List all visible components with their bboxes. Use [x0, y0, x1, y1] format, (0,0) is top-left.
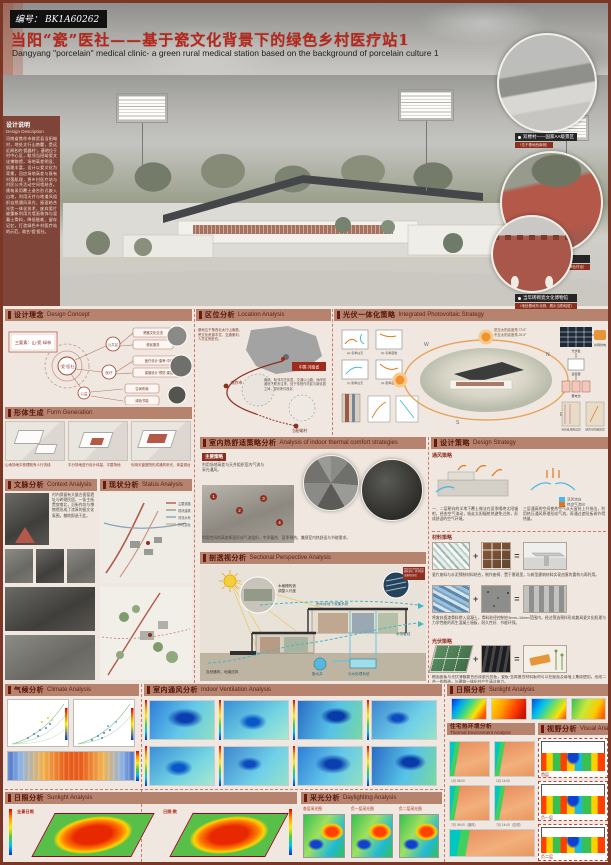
location-village-label: 当阳峪村	[292, 428, 307, 433]
daylight-map-3	[399, 814, 439, 858]
sunlight-tile	[531, 698, 567, 720]
design-description-panel: 设计说明 Design Description 河南省焦作市修武县当阳峪村，地处…	[3, 116, 60, 306]
section-title-cn: 剖透视分析	[209, 553, 247, 563]
thermal-axon-tile-wide	[449, 829, 535, 857]
section-header-daylight: 采光分析 Daylighting Analysis	[301, 792, 442, 804]
section-header-pv: 光伏一体化策略 Integrated Photovoltaic Strategy	[334, 309, 608, 321]
strategy-sub2: 材料策略	[432, 534, 452, 541]
comfort-photo-wheel	[303, 455, 359, 511]
annotation-leader-line	[426, 121, 427, 191]
cfd-tile	[149, 700, 215, 740]
section-title-cn: 室内热舒适策略分析	[209, 438, 277, 448]
material-cap2: 将废弃瓷渣骨料掺入混凝土，骨料粒径控制在5mm–10mm范围内，经过筛选预拌形成…	[432, 616, 606, 626]
section-bullet-icon	[8, 409, 11, 417]
plus-icon: +	[473, 594, 478, 604]
section-header-design-concept: 设计理念 Design Concept	[5, 309, 192, 321]
material-cap3: 釉面瓷板与光伏薄膜复合形成瓷光伏板，瓷板·金属复合材料板材可以在屋面及幕墙上集成…	[432, 675, 606, 683]
cfd-colorbar	[219, 746, 221, 786]
concept-node: 公益	[80, 391, 88, 396]
section-title-cn: 光伏一体化策略	[343, 310, 396, 320]
daylight-map-1	[303, 814, 345, 858]
location-note: 基地位于豫西北太行山南麓，瓷文化资源丰富，交通便利，人员往来密切。	[198, 328, 242, 342]
ventilation-diagram-1	[432, 460, 518, 504]
section-header-sectional: 剖透视分析 Sectional Perspective Analysis	[200, 552, 426, 564]
section-title-cn: 室内通风分析	[153, 685, 198, 695]
pv-flow-label: 逆变器	[571, 371, 580, 376]
sectional-label-rain: 雨水经地下收集系统	[316, 601, 349, 606]
location-map-diagram: 中国·河南省 焦作市 当阳峪村 基地位于豫西北太行山南麓，瓷文化资源丰富，交通便…	[196, 322, 331, 435]
form-step-2	[68, 421, 128, 461]
thermal-axon-tile	[449, 741, 490, 777]
strategy-divider	[432, 531, 606, 532]
section-title-en: Status Analysis	[142, 482, 183, 488]
daylight-label-3: 负二层采光图	[399, 807, 422, 812]
section-header-sunlight: 日照分析 Sunlight Analysis	[447, 684, 608, 696]
cfd-tile	[371, 746, 437, 786]
porcelain-shards-photo	[432, 542, 470, 570]
cfd-colorbar	[145, 700, 147, 740]
form-caption-3: 利用天窗庭院形成通风采光，体量退台	[131, 463, 191, 468]
cfd-tile	[223, 746, 289, 786]
visual-box-3: 负二层	[538, 824, 608, 861]
description-title-en: Design Description	[6, 129, 57, 134]
pv-room-caption: (a) 冬季白天	[347, 350, 364, 355]
section-title-cn: 文脉分析	[14, 480, 44, 490]
pv-strategy-diagram: (a) 冬季白天 (b) 冬季夜晚 (c) 夏季白天 (d) 夏季夜晚 夏至太阳…	[334, 322, 608, 435]
thermal-caption: 1月 14:00	[496, 778, 510, 783]
daylight-label-2: 负一层采光图	[351, 807, 374, 812]
sunlight-mid-label: 日照·数	[163, 809, 177, 815]
section-bullet-icon	[147, 686, 150, 694]
location-city-label: 焦作市	[231, 380, 243, 385]
section-header-comfort: 室内热舒适策略分析 Analysis of indoor thermal com…	[200, 437, 426, 449]
compass-w: W	[424, 342, 429, 348]
sectional-label-pipes: 水流管线	[396, 631, 411, 636]
code-value: BK1A60262	[45, 15, 99, 25]
pv-flow-label: 蓄电池	[571, 393, 580, 398]
location-desc: 南依、毗邻村庄民居，交通以山路、休闲河滩地下联系往来，处于传统作坊区与新民居之间…	[264, 378, 326, 391]
cfd-tile	[297, 746, 363, 786]
location-country-label: 中国·河南省	[299, 365, 319, 370]
section-bullet-icon	[8, 686, 11, 694]
visual-heatmap	[541, 753, 605, 771]
daylight-map-2	[351, 814, 393, 858]
section-header-visual: 视野分析 Visual Analysis	[538, 723, 608, 735]
sunlight-left-label: 全景日照	[17, 809, 34, 815]
callout-label: 双楼村——国家AA级景区	[523, 134, 574, 140]
bottom-divider-2	[444, 684, 445, 862]
concept-mindmap-diagram: 三要素：山·瓷·绿林 “瓷”医社 公共区 医疗 公益 瓷器文化交流 便民服务 医…	[5, 322, 192, 405]
sun-angle-summer: 夏至太阳高度角 73.5°	[494, 327, 527, 332]
sunlight-colorbar	[9, 809, 12, 855]
aggregate-steel-photo	[481, 585, 511, 613]
context-photo-4	[67, 549, 95, 583]
site-photo-museum	[491, 215, 573, 293]
comfort-interior-photo	[361, 459, 423, 521]
section-title-en: Design Strategy	[473, 440, 516, 446]
section-bullet-icon	[103, 481, 106, 489]
sectional-label-grille-2: 调整人尺度	[278, 588, 296, 593]
section-title-en: Sunlight Analysis	[47, 795, 92, 801]
compass-n: N	[546, 352, 550, 358]
section-title-cn: 日照分析	[14, 793, 44, 803]
psychrometric-chart-1	[7, 699, 69, 747]
pv-panel-stack-photo	[481, 645, 511, 673]
pv-flow-label: 并网供电	[594, 342, 606, 347]
cfd-colorbar	[219, 700, 221, 740]
section-title-cn: 视野分析	[547, 724, 577, 734]
legend-label: 河流水系	[178, 515, 191, 520]
description-title-cn: 设计说明	[6, 120, 57, 129]
floor-plan-outline	[541, 827, 605, 837]
sunlight-plan-2	[169, 813, 288, 857]
plus-icon: +	[473, 551, 478, 561]
page-title: 当阳“瓷”医社——基于瓷文化背景下的绿色乡村医疗站1	[11, 29, 410, 50]
concept-leaf: 医疗设计·康养·中医	[145, 358, 174, 363]
comfort-tag: 主要策略	[202, 453, 226, 461]
thermal-axon-tile	[494, 785, 535, 821]
form-caption-2: 平分场地进行设计体量，平整场地	[68, 463, 128, 468]
callout-label: 当年砖砌瓷文化博物馆	[523, 295, 568, 301]
visual-heatmap	[541, 837, 605, 853]
pv-wall-caption: 通风空腔散热层	[585, 428, 605, 432]
strategy-cap1: 一、二层朝向的半地下覆土做法在夏季隔绝太阳辐射，经由空气流动，吸走太阳辐射热避免…	[432, 507, 518, 522]
form-step-1	[5, 421, 65, 461]
render-annotation-box	[116, 93, 168, 123]
context-photo-2	[5, 549, 33, 583]
status-site-plan	[100, 587, 192, 680]
section-title-cn: 日照分析	[456, 685, 486, 695]
material-equation-3: + =	[432, 645, 567, 673]
section-title-en: Integrated Photovoltaic Strategy	[399, 312, 484, 318]
section-title-cn: 区位分析	[205, 310, 235, 320]
column-divider	[194, 309, 195, 683]
site-photo-road	[497, 33, 597, 133]
thermal-axon-tile	[494, 741, 535, 777]
section-bullet-icon	[8, 311, 11, 319]
section-bullet-icon	[541, 725, 544, 733]
sectional-label-well: 集水井	[312, 671, 323, 676]
section-header-ventilation: 室内通风分析 Indoor Ventilation Analysis	[144, 684, 442, 696]
section-title-cn: 设计理念	[14, 310, 44, 320]
sectional-label-grille: 木格栅构造	[278, 583, 296, 588]
pv-wall-caption: 光伏幕墙构造层	[561, 428, 581, 432]
equals-icon: =	[514, 551, 519, 561]
ribbed-concrete-wall-photo	[523, 585, 567, 613]
photo-callout-3: 当年砖砌瓷文化博物馆 （地处基地东北侧，展示当阳峪窑）	[515, 294, 577, 309]
visual-box-2: 负一层	[538, 781, 608, 821]
section-title-en: Form Generation	[47, 410, 92, 416]
daylight-label-1: 各层采光图	[303, 807, 322, 812]
pv-building-diagram	[523, 645, 567, 673]
plus-icon: +	[473, 654, 478, 664]
comfort-bottom-note: 利用空间的高差断面形成气流组织，冬季蓄热、夏季排热，兼顾室内热舒适与节能需求。	[202, 536, 424, 541]
visual-floor-label: 负二层	[541, 854, 605, 860]
concept-leaf: 瓷器文化交流	[143, 330, 163, 335]
thermal-caption: 1月 08:00	[451, 778, 465, 783]
comfort-section-image: 1 2 3 4	[202, 485, 294, 543]
sectional-panel-note: 屋面光伏板吸收太阳辐射发电，多余热量由通风层带走	[404, 568, 424, 578]
glazed-tile-photo	[429, 645, 474, 673]
section-header-location: 区位分析 Location Analysis	[196, 309, 331, 321]
section-title-cn: 采光分析	[310, 793, 340, 803]
visual-heatmap	[541, 796, 605, 814]
section-title-en: Daylighting Analysis	[343, 795, 396, 801]
section-title-en: Sunlight Analysis	[489, 687, 534, 693]
section-bullet-icon	[434, 439, 437, 447]
strategy-cap2: 三层通高的空间使热空气从天窗处上升排出，利用热压通风原理形成气流，再通过遮阳板调…	[523, 507, 605, 522]
annual-temperature-heatmap	[7, 751, 135, 781]
pv-room-diagrams: (a) 冬季白天 (b) 冬季夜晚 (c) 夏季白天 (d) 夏季夜晚	[342, 330, 418, 422]
cool-flow-swatch-icon	[559, 497, 565, 502]
sectional-label-sewage: 污水处理系统	[348, 671, 370, 676]
section-bullet-icon	[450, 686, 453, 694]
callout-dot-icon	[518, 297, 521, 300]
section-title-en: Analysis of indoor thermal comfort strat…	[280, 440, 398, 446]
sun-angle-winter: 冬至太阳高度角 26.5°	[494, 332, 527, 337]
porcelain-bench-photo	[523, 542, 567, 570]
section-header-thermal-env: 住宅热环境分析 Thermal Environment Analysis	[447, 723, 535, 735]
cfd-colorbar	[293, 746, 295, 786]
form-step-3	[131, 421, 191, 461]
concept-leaf: 保健设计·预防·康复	[145, 370, 174, 375]
form-caption-1: 山地场地中梳理既有人行流线	[5, 463, 65, 468]
section-title-cn: 现状分析	[109, 480, 139, 490]
section-bullet-icon	[8, 481, 11, 489]
thermal-axon-tile	[449, 785, 490, 821]
concept-leaf: 绿色节能	[135, 398, 149, 403]
section-header-context: 文脉分析 Context Analysis	[5, 479, 97, 491]
description-body: 河南省焦作市修武县当阳峪村，地处太行山南麓，是远近闻名的“瓷器村”。基地位于村中…	[6, 136, 57, 235]
section-title-cn: 设计策略	[440, 438, 470, 448]
bottom-divider-3	[5, 789, 443, 790]
section-title-en: Sectional Perspective Analysis	[250, 555, 331, 561]
sectional-perspective-diagram: 屋面光伏板吸收太阳辐射发电，多余热量由通风层带走 木格栅构造 调整人尺度 雨水经…	[200, 565, 426, 681]
comfort-note: 利用场地高差与天井组织室内气流与采光通风。	[202, 463, 264, 473]
sunlight-tile	[491, 698, 527, 720]
floor-plan-outline	[541, 741, 605, 753]
psychrometric-chart-2	[73, 699, 135, 747]
section-title-en: Location Analysis	[238, 312, 284, 318]
compass-s: S	[456, 420, 460, 426]
context-photo-6	[5, 635, 95, 680]
status-map: 主要道路 现状建筑 河流水系 作坊遗址	[100, 493, 192, 583]
section-header-strategy: 设计策略 Design Strategy	[431, 437, 608, 449]
poster-board: 编号： BK1A60262 当阳“瓷”医社——基于瓷文化背景下的绿色乡村医疗站1…	[0, 0, 611, 865]
strategy-sub1: 通风策略	[432, 452, 452, 459]
legend-label: 作坊遗址	[178, 522, 192, 527]
sunlight-colorbar	[289, 809, 292, 855]
section-title-en: Thermal Environment Analysis	[450, 730, 511, 735]
cfd-colorbar	[293, 700, 295, 740]
pv-flow-label: 光伏板	[571, 348, 580, 353]
callout-sub: （位于基地西南侧）	[515, 142, 553, 148]
context-red-marker	[15, 527, 35, 543]
concept-leaf: 便民服务	[146, 342, 160, 347]
section-header-climate: 气候分析 Climate Analysis	[5, 684, 139, 696]
cfd-colorbar	[145, 746, 147, 786]
sectional-label-vent: 自然通风，地道送风	[206, 669, 239, 674]
pv-system-flow-diagram: 光伏板 逆变器 蓄电池 并网供电 光伏幕墙构造层 通风空腔散热层	[560, 327, 606, 432]
code-label: 编号：	[15, 12, 42, 25]
equals-icon: =	[514, 594, 519, 604]
annotation-leader-line	[142, 123, 143, 185]
material-equation-2: + =	[432, 585, 567, 613]
tile-samples-photo	[481, 542, 511, 570]
material-cap1: 瓷片废料与水泥预制材料结合，制作座椅、置于景观里，与新型建筑材料实现创意的重构与…	[432, 573, 606, 578]
section-title-en: Context Analysis	[47, 482, 91, 488]
photo-callout-1: 双楼村——国家AA级景区 （位于基地西南侧）	[515, 133, 577, 148]
concept-keybox-label: 三要素：山·瓷·绿林	[15, 339, 52, 346]
cfd-tile	[223, 700, 289, 740]
section-title-en: Design Concept	[47, 312, 90, 318]
section-bullet-icon	[203, 439, 206, 447]
context-text: 村内保留有大量古瓷窑遗址与砖砌民居，一条主街贯穿南北，沿街作坊与博物馆形成了浓厚…	[52, 493, 94, 519]
project-code-box: 编号： BK1A60262	[10, 10, 107, 28]
column-divider	[428, 437, 429, 683]
section-header-sunlight-bottom: 日照分析 Sunlight Analysis	[5, 792, 297, 804]
section-title-en: Climate Analysis	[47, 687, 91, 693]
thermal-caption: 7月 08:00（通风）	[451, 822, 478, 827]
material-equation-1: + =	[432, 542, 567, 570]
cfd-tile	[297, 700, 363, 740]
cfd-colorbar	[367, 700, 369, 740]
heatmap-colorbar	[136, 751, 139, 781]
section-header-status: 现状分析 Status Analysis	[100, 479, 192, 491]
section-bullet-icon	[199, 311, 202, 319]
cfd-colorbar	[367, 746, 369, 786]
visual-floor-label: 负一层	[541, 815, 605, 821]
callout-dot-icon	[518, 136, 521, 139]
section-title-en: Indoor Ventilation Analysis	[201, 687, 271, 693]
sunlight-plan-1	[31, 813, 154, 857]
context-photo-3	[36, 549, 64, 583]
section-header-form-generation: 形体生成 Form Generation	[5, 407, 192, 419]
section-bullet-icon	[304, 794, 307, 802]
pv-room-caption: (c) 夏季白天	[347, 380, 363, 385]
floor-plan-outline	[541, 784, 605, 796]
legend-label: 现状建筑	[178, 508, 192, 513]
strategy-sub3: 光伏策略	[432, 638, 452, 645]
visual-floor-label: 首层	[541, 772, 605, 778]
legend-cool-label: 凉风流向	[567, 497, 581, 501]
section-bullet-icon	[203, 554, 206, 562]
concept-node: 医疗	[105, 370, 113, 375]
sunlight-tile	[451, 698, 487, 720]
cfd-tile	[149, 746, 215, 786]
section-title-cn: 形体生成	[14, 408, 44, 418]
legend-label: 主要道路	[178, 501, 192, 506]
cfd-tile	[371, 700, 437, 740]
section-bullet-icon	[8, 794, 11, 802]
column-divider	[332, 309, 333, 435]
concept-root-label: “瓷”医社	[60, 363, 75, 369]
blue-porcelain-shards-photo	[432, 585, 470, 613]
section-title-cn: 气候分析	[14, 685, 44, 695]
section-title-en: Visual Analysis	[580, 726, 608, 732]
page-subtitle: Dangyang "porcelain" medical clinic- a g…	[12, 48, 439, 58]
concept-node: 公共区	[108, 342, 119, 347]
sunlight-tile	[571, 698, 606, 720]
context-photo-5	[5, 587, 95, 631]
thermal-caption: 7月 14:00（空调）	[496, 822, 523, 827]
section-bullet-icon	[337, 311, 340, 319]
equals-icon: =	[514, 654, 519, 664]
pv-room-caption: (b) 冬季夜晚	[381, 350, 398, 355]
concept-leaf: 空间布局	[135, 386, 148, 391]
render-annotation-box	[398, 89, 454, 121]
visual-box-1: 首层	[538, 738, 608, 778]
